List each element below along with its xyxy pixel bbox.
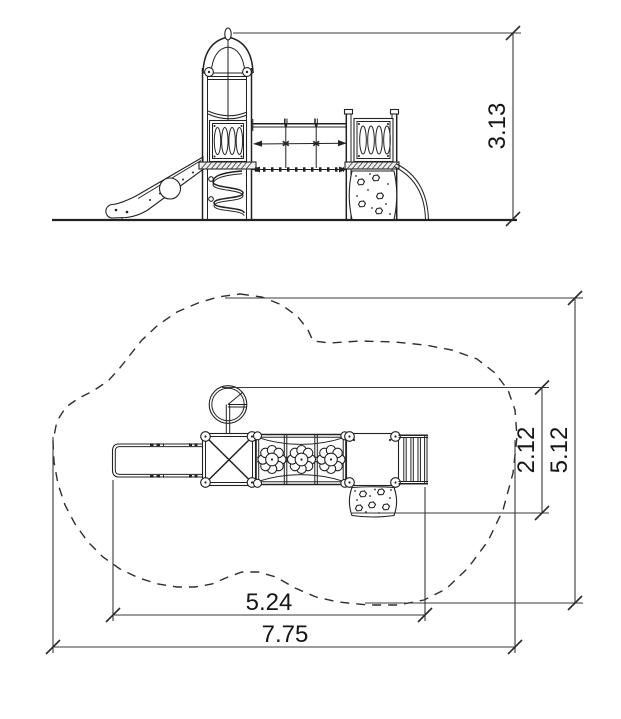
curved-pole [394, 164, 429, 220]
side-deck-plan [347, 434, 399, 486]
net-flower [258, 446, 286, 474]
net-flower [288, 446, 316, 474]
roof-circle-plan [209, 386, 247, 434]
slide-plan [113, 444, 204, 477]
elevation-view: 3.13 [52, 26, 521, 226]
net-flower [317, 446, 345, 474]
equipment-width-label: 5.24 [246, 589, 293, 616]
side-tower-elevation [345, 110, 429, 221]
zone-width-label: 7.75 [262, 621, 309, 648]
height-dim-label: 3.13 [484, 103, 511, 150]
ladder-plan [399, 435, 429, 483]
deck-band-left [199, 162, 256, 169]
side-panel [354, 119, 393, 162]
arch-roof [203, 28, 253, 121]
tower-panel [210, 121, 247, 162]
slide-elevation [106, 157, 213, 220]
rope-bridge-elevation [252, 119, 347, 173]
drawing-canvas: 3.13 [0, 0, 621, 719]
equipment-depth-label: 2.12 [513, 427, 540, 474]
main-tower-elevation [199, 28, 256, 220]
zone-depth-label: 5.12 [546, 427, 573, 474]
plan-view: 5.24 7.75 2.12 5.12 [46, 291, 583, 654]
playground-drawing: 3.13 [0, 0, 621, 719]
deck-band-right [345, 162, 399, 169]
spiral-climber [213, 171, 244, 216]
main-deck-plan [203, 434, 256, 486]
climb-wall-elevation [349, 171, 397, 220]
bridge-plan [256, 435, 346, 485]
